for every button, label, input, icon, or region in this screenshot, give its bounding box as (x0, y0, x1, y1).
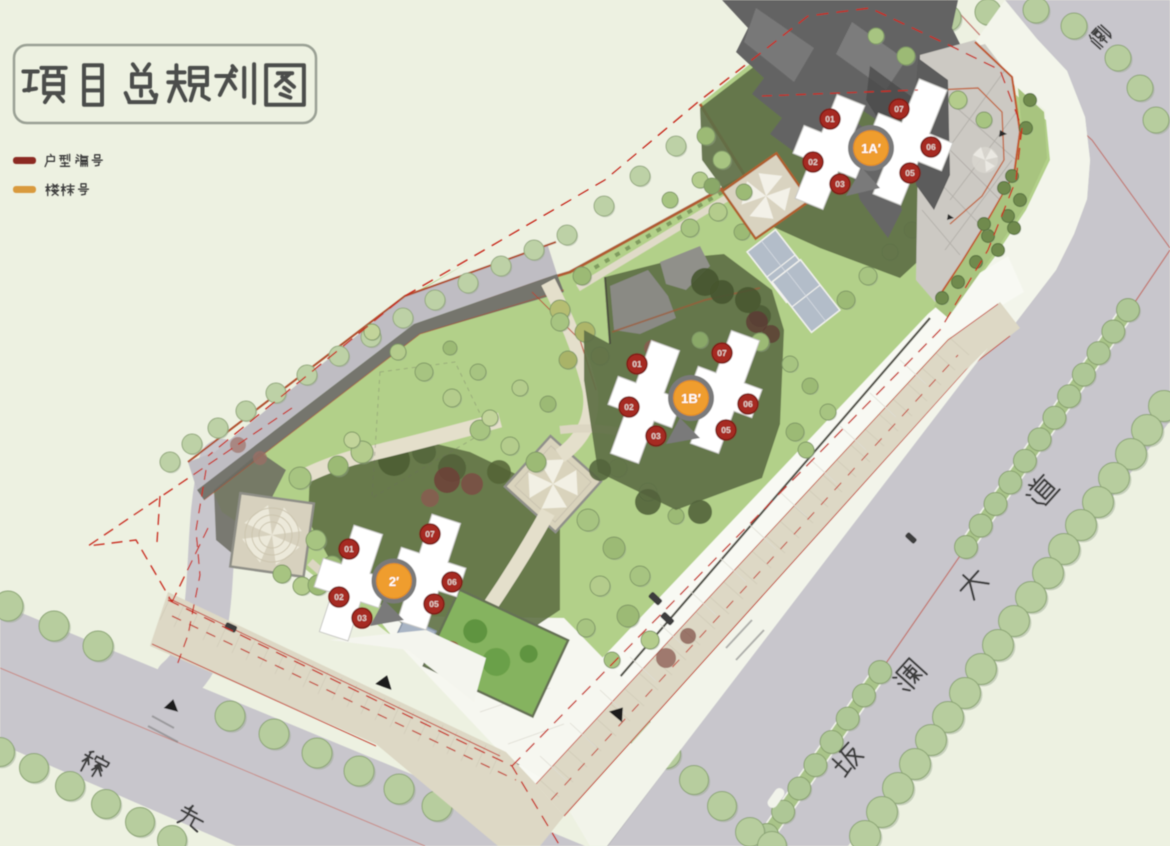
svg-text:06: 06 (926, 142, 936, 152)
svg-text:02: 02 (334, 592, 344, 602)
svg-text:1A′: 1A′ (861, 141, 881, 156)
svg-text:03: 03 (835, 179, 845, 189)
svg-text:2′: 2′ (389, 574, 399, 589)
svg-text:05: 05 (905, 168, 915, 178)
svg-text:05: 05 (429, 599, 439, 609)
svg-text:05: 05 (721, 425, 731, 435)
svg-text:01: 01 (632, 359, 642, 369)
svg-text:02: 02 (808, 157, 818, 167)
svg-text:1B′: 1B′ (681, 391, 701, 406)
svg-text:07: 07 (717, 348, 727, 358)
svg-text:06: 06 (447, 577, 457, 587)
svg-text:01: 01 (825, 114, 835, 124)
svg-text:07: 07 (425, 529, 435, 539)
svg-text:07: 07 (894, 104, 904, 114)
svg-text:06: 06 (743, 399, 753, 409)
svg-text:03: 03 (357, 613, 367, 623)
svg-text:02: 02 (624, 402, 634, 412)
svg-text:01: 01 (344, 544, 354, 554)
svg-text:03: 03 (651, 431, 661, 441)
